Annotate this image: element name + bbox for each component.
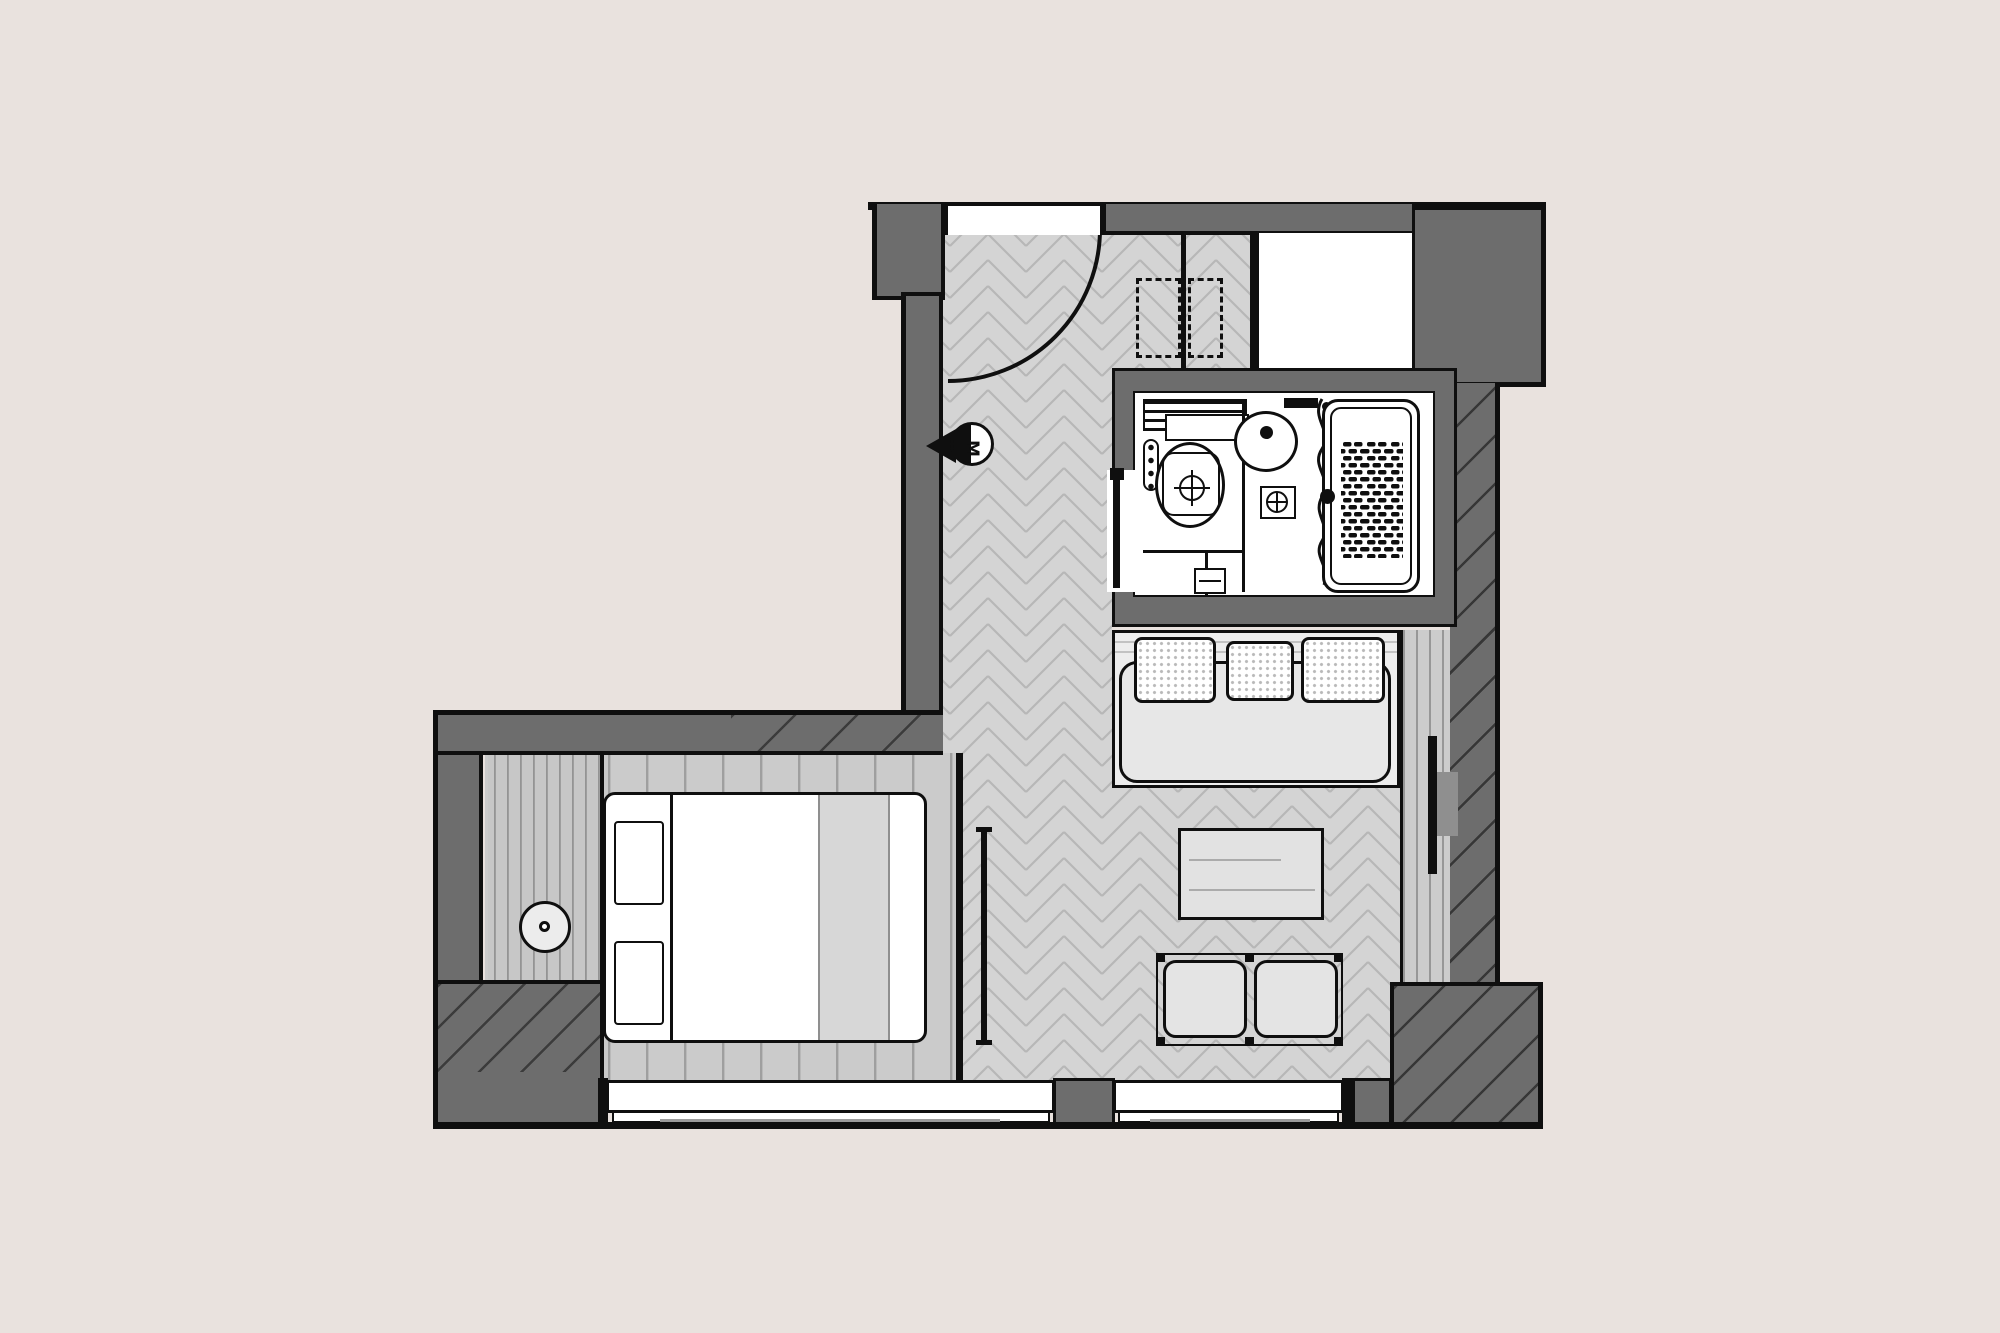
nook-top-wall [433, 710, 943, 755]
bathroom-door-opening [1107, 470, 1137, 592]
service-shaft [1259, 233, 1412, 382]
partition-track-cap [976, 827, 992, 832]
round-basin [1234, 411, 1298, 472]
window-right-glass-line [1150, 1119, 1310, 1122]
sofa-cushion [1226, 641, 1294, 701]
closet-divider-wall [1181, 233, 1186, 375]
coffee-table [1178, 828, 1324, 920]
shower-divider-line-h [1143, 550, 1243, 553]
floor-drain [1260, 486, 1296, 519]
wall-mounted-tv [1428, 736, 1437, 874]
bathroom-door-hardware [1110, 468, 1124, 480]
bed-runner-band [818, 795, 890, 1040]
bathroom-door-leaf [1113, 476, 1120, 588]
sofa [1112, 630, 1400, 788]
bathroom-interior [1133, 391, 1435, 597]
door-marker-letter: M [962, 431, 982, 457]
floor-pattern-layer [0, 0, 2000, 1333]
lamp-center-dot [539, 921, 550, 932]
ottoman [1254, 960, 1338, 1038]
nook-left-wall [433, 755, 483, 982]
double-bed [603, 792, 927, 1043]
between-windows-wall [1053, 1078, 1115, 1125]
bottom-left-wall-block [433, 980, 604, 1125]
window-left-pane [606, 1080, 1055, 1113]
curtain-handle-dot [1320, 489, 1335, 504]
bed-pillow [614, 941, 664, 1025]
table-grain-line [1189, 889, 1315, 891]
entry-side-wall [872, 204, 945, 300]
nook-hall-boundary-line [956, 753, 963, 1084]
bathtub [1322, 399, 1420, 593]
sofa-cushion [1301, 637, 1385, 703]
entry-threshold [945, 204, 1103, 235]
bedside-lamp [519, 901, 571, 953]
window-right-pane [1113, 1080, 1344, 1113]
bed-pillow [614, 821, 664, 905]
floor-drain-grate [1266, 491, 1288, 513]
basin-faucet-dot [1260, 426, 1273, 439]
right-exterior-wall [1450, 383, 1500, 984]
tv-mount [1437, 772, 1458, 836]
partition-track [981, 830, 987, 1042]
corner-column [1412, 210, 1546, 387]
wall-hatching [731, 715, 943, 751]
door-marker-symbol: M [950, 422, 994, 466]
bathtub-antislip-mat [1341, 440, 1403, 558]
wall-hatching [438, 984, 600, 1072]
bottom-right-wall-block [1390, 982, 1543, 1125]
bed-head-divider-line [670, 795, 673, 1040]
closet-rail-right [1188, 278, 1223, 358]
top-wall-right-segment [1103, 204, 1412, 235]
ottoman [1163, 960, 1247, 1038]
window-left-glass-line [660, 1119, 1000, 1122]
toilet-crosshair-symbol [1179, 475, 1205, 501]
towel-rail [1194, 568, 1226, 594]
partition-track-cap [976, 1040, 992, 1045]
hall-left-wall [901, 292, 943, 755]
shaft-left-wall [1250, 233, 1259, 383]
ottoman-set [1156, 953, 1343, 1046]
window-corner-step-wall [1352, 1078, 1392, 1125]
floor-plan: M [0, 0, 2000, 1333]
closet-rail-left [1136, 278, 1181, 358]
table-grain-line [1189, 859, 1281, 861]
sofa-cushion [1134, 637, 1216, 703]
